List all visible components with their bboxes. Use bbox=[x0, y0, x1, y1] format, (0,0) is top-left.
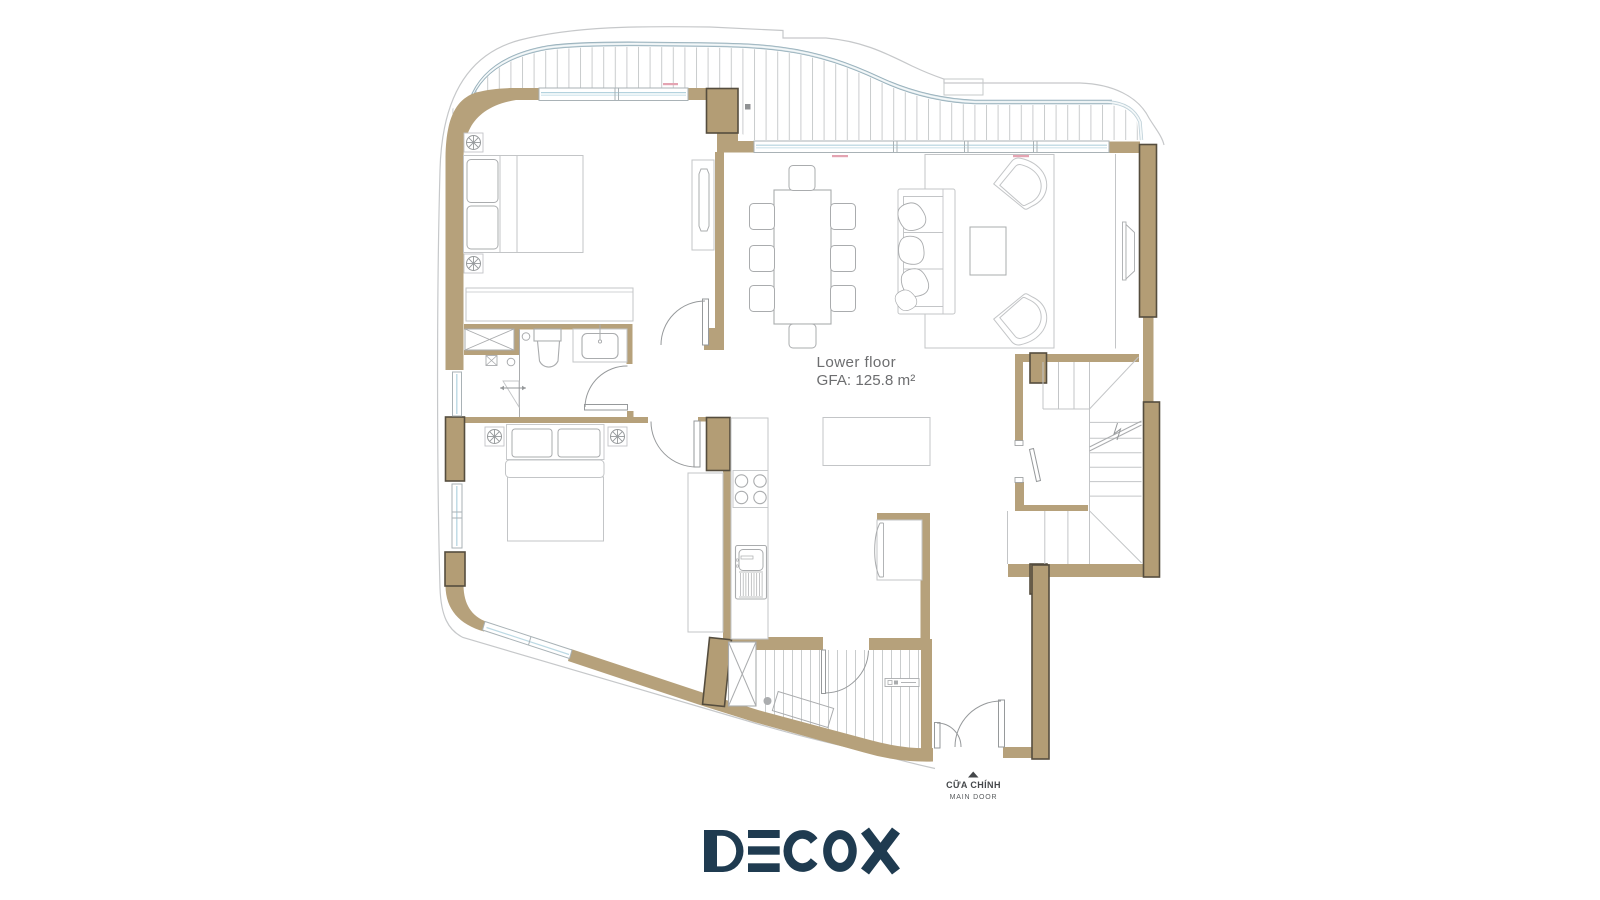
svg-text:CỮA CHÍNH: CỮA CHÍNH bbox=[946, 780, 1001, 790]
svg-text:Lower floor: Lower floor bbox=[817, 354, 897, 371]
svg-text:GFA: 125.8 m²: GFA: 125.8 m² bbox=[817, 372, 916, 389]
svg-text:MAIN DOOR: MAIN DOOR bbox=[950, 794, 998, 801]
